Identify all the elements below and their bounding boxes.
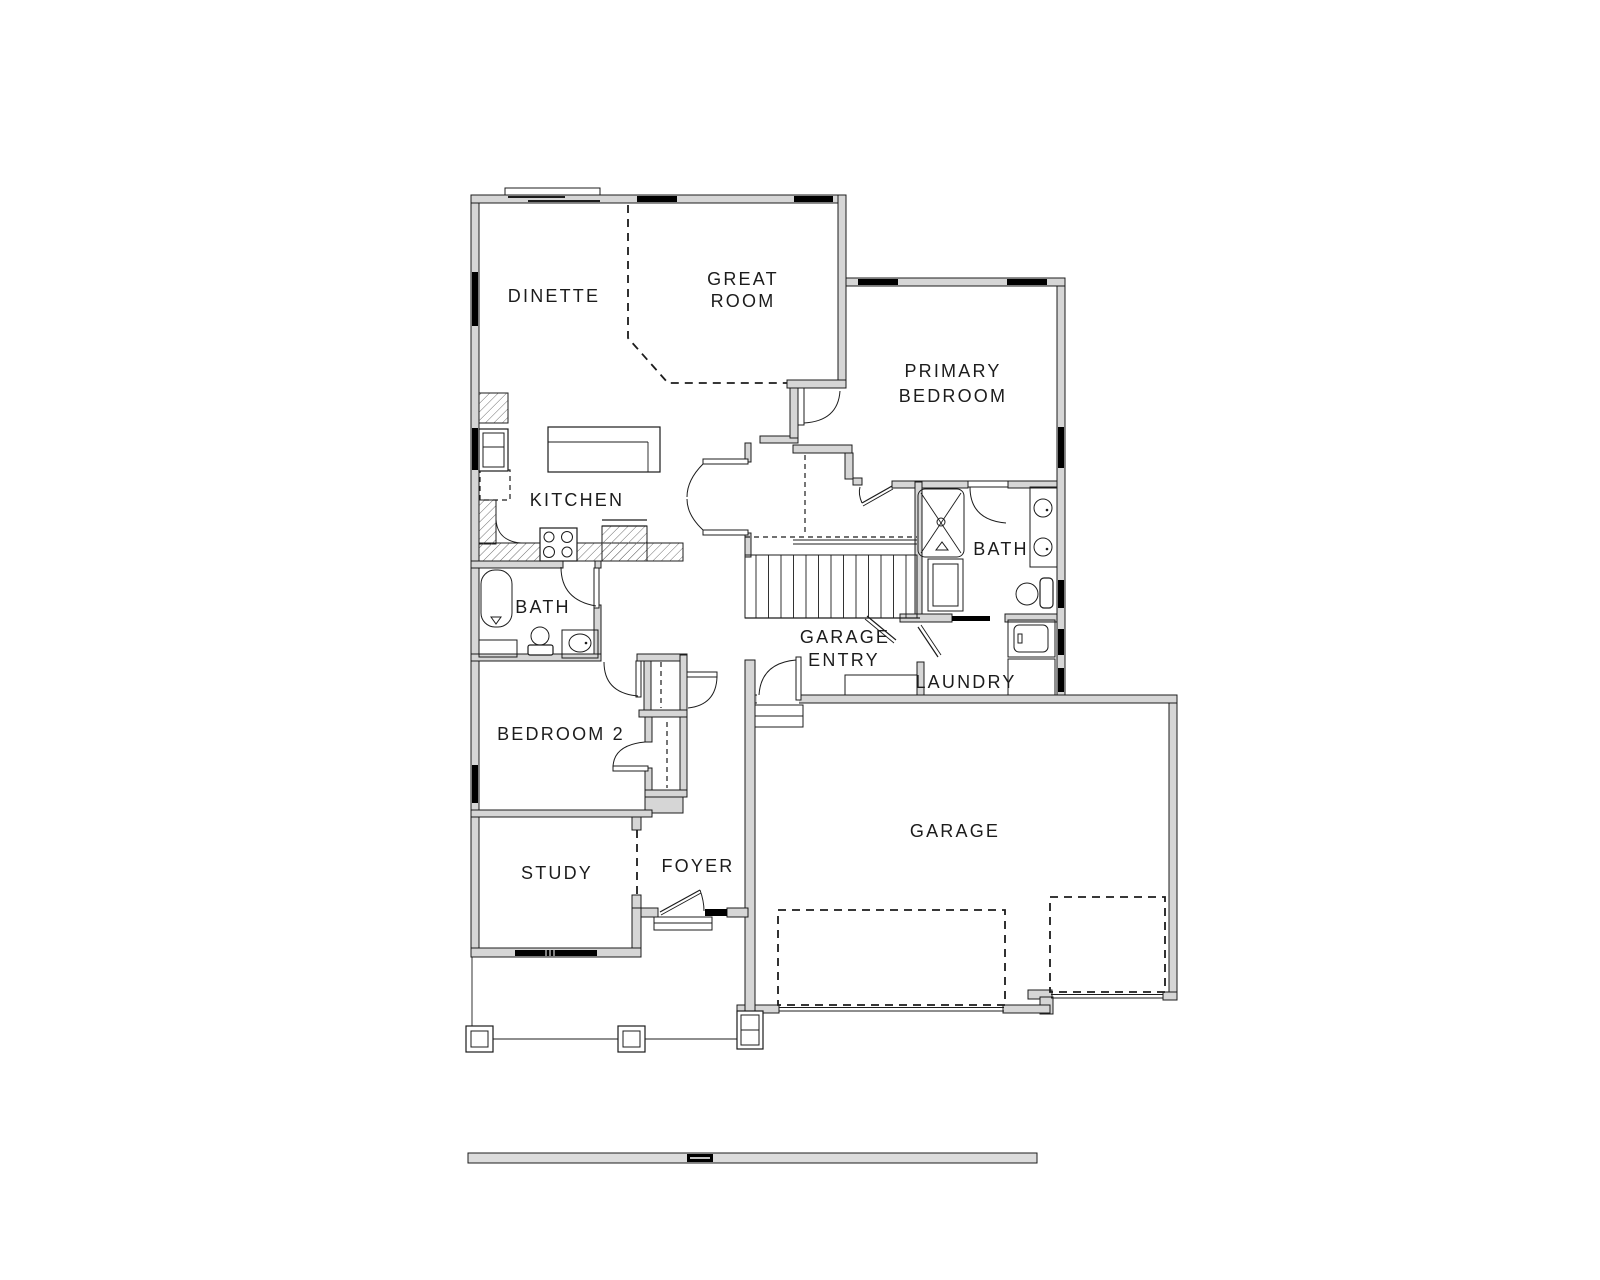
room-label-garage: GARAGE xyxy=(910,821,1000,841)
porch-column xyxy=(618,1026,645,1052)
room-label-hall-bath: BATH xyxy=(515,597,570,617)
stairs xyxy=(745,540,920,618)
window xyxy=(637,196,677,202)
room-label-garage-entry-1: GARAGE xyxy=(800,627,890,647)
shower-stall xyxy=(918,489,964,557)
counter-hatch xyxy=(479,393,508,423)
front-step xyxy=(654,917,712,930)
pocket-door xyxy=(952,616,990,621)
room-label-primary-bath: BATH xyxy=(973,539,1028,559)
door-swing xyxy=(759,657,801,700)
door-swing xyxy=(604,661,641,697)
window xyxy=(1058,580,1064,608)
toilet xyxy=(1016,578,1053,608)
raised-counter xyxy=(602,526,647,561)
floor-plan-page: DINETTE GREAT ROOM PRIMARY BEDROOM KITCH… xyxy=(0,0,1600,1280)
garage-step xyxy=(755,705,803,727)
french-doors xyxy=(687,459,748,535)
window xyxy=(1058,668,1064,692)
door-swing xyxy=(859,486,893,506)
porch xyxy=(466,917,763,1052)
range-cooktop xyxy=(540,528,577,561)
window xyxy=(858,279,898,285)
walls xyxy=(471,188,1177,1014)
room-label-kitchen: KITCHEN xyxy=(530,490,624,510)
foyer-sidelite-window xyxy=(705,909,727,916)
garage-door-dashed xyxy=(1050,897,1165,992)
room-label-foyer: FOYER xyxy=(661,856,734,876)
room-label-bedroom2: BEDROOM 2 xyxy=(497,724,625,744)
window xyxy=(1058,629,1064,655)
window xyxy=(472,428,478,470)
washer xyxy=(1008,620,1055,657)
door-swing xyxy=(687,672,717,708)
pantry-dashed xyxy=(480,470,510,500)
toilet xyxy=(528,627,553,655)
porch-column xyxy=(466,1026,493,1052)
room-label-garage-entry-2: ENTRY xyxy=(808,650,880,670)
refrigerator xyxy=(479,429,508,471)
window xyxy=(794,196,833,202)
counter-hatch xyxy=(479,500,496,544)
door-swing xyxy=(918,625,941,657)
room-label-primary-1: PRIMARY xyxy=(904,361,1001,381)
porch-column xyxy=(737,1011,763,1049)
patio-slider-frame xyxy=(505,188,600,195)
door-swing xyxy=(798,388,840,425)
room-label-primary-2: BEDROOM xyxy=(899,386,1007,406)
counter-hatch xyxy=(479,543,683,561)
room-label-great-room-1: GREAT xyxy=(707,269,779,289)
room-label-study: STUDY xyxy=(521,863,593,883)
garage-entry-door-opening xyxy=(757,694,799,704)
garage-door-panels xyxy=(779,995,1163,1012)
door-swing xyxy=(968,481,1008,523)
room-label-great-room-2: ROOM xyxy=(711,291,776,311)
room-labels: DINETTE GREAT ROOM PRIMARY BEDROOM KITCH… xyxy=(497,269,1029,883)
door-swing xyxy=(613,742,648,771)
window xyxy=(472,765,478,803)
window xyxy=(1007,279,1047,285)
bench xyxy=(845,675,917,695)
kitchen-island xyxy=(548,427,660,472)
site-line xyxy=(468,1153,1037,1163)
room-label-laundry: LAUNDRY xyxy=(915,672,1016,692)
linen-cabinet xyxy=(928,559,963,611)
floor-plan-drawing: DINETTE GREAT ROOM PRIMARY BEDROOM KITCH… xyxy=(0,0,1600,1280)
bathtub xyxy=(481,570,512,627)
front-door xyxy=(660,890,704,915)
window xyxy=(472,272,478,326)
room-label-dinette: DINETTE xyxy=(508,286,600,306)
window xyxy=(1058,427,1064,468)
study-window xyxy=(515,950,597,956)
double-vanity xyxy=(1030,487,1057,567)
garage-door-dashed xyxy=(778,910,1005,1005)
